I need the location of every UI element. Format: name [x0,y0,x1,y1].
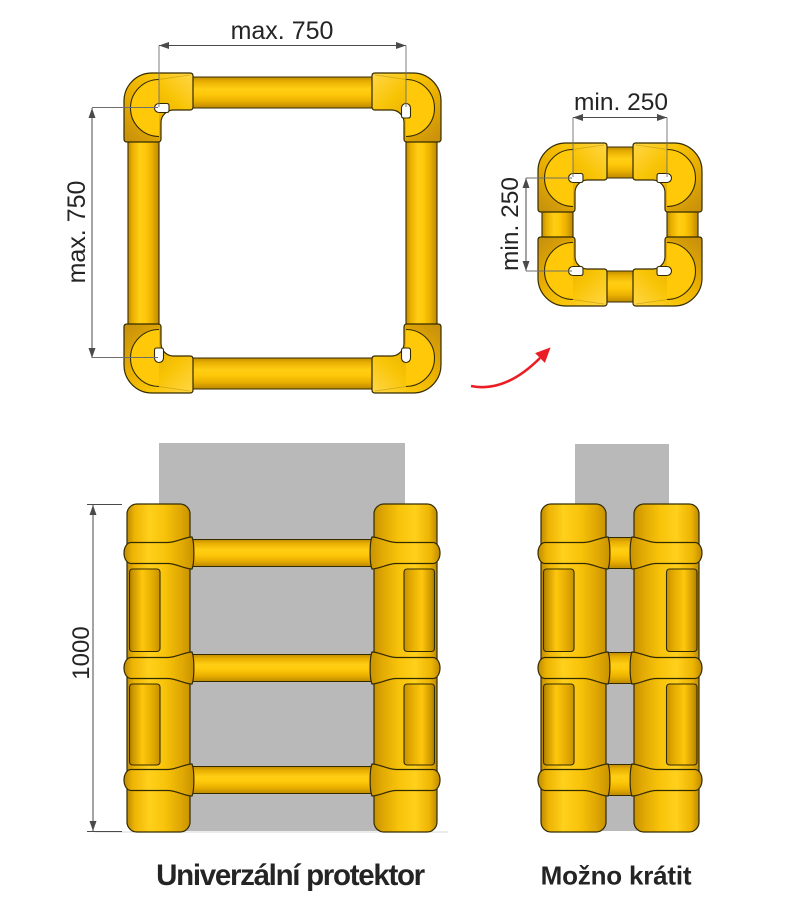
svg-text:Univerzální protektor: Univerzální protektor [156,859,426,892]
svg-text:1000: 1000 [68,626,95,679]
svg-text:Možno krátit: Možno krátit [541,861,692,891]
svg-text:max. 750: max. 750 [231,17,334,45]
svg-text:min. 250: min. 250 [574,89,668,116]
svg-text:min. 250: min. 250 [497,177,524,271]
svg-text:max. 750: max. 750 [63,181,91,284]
